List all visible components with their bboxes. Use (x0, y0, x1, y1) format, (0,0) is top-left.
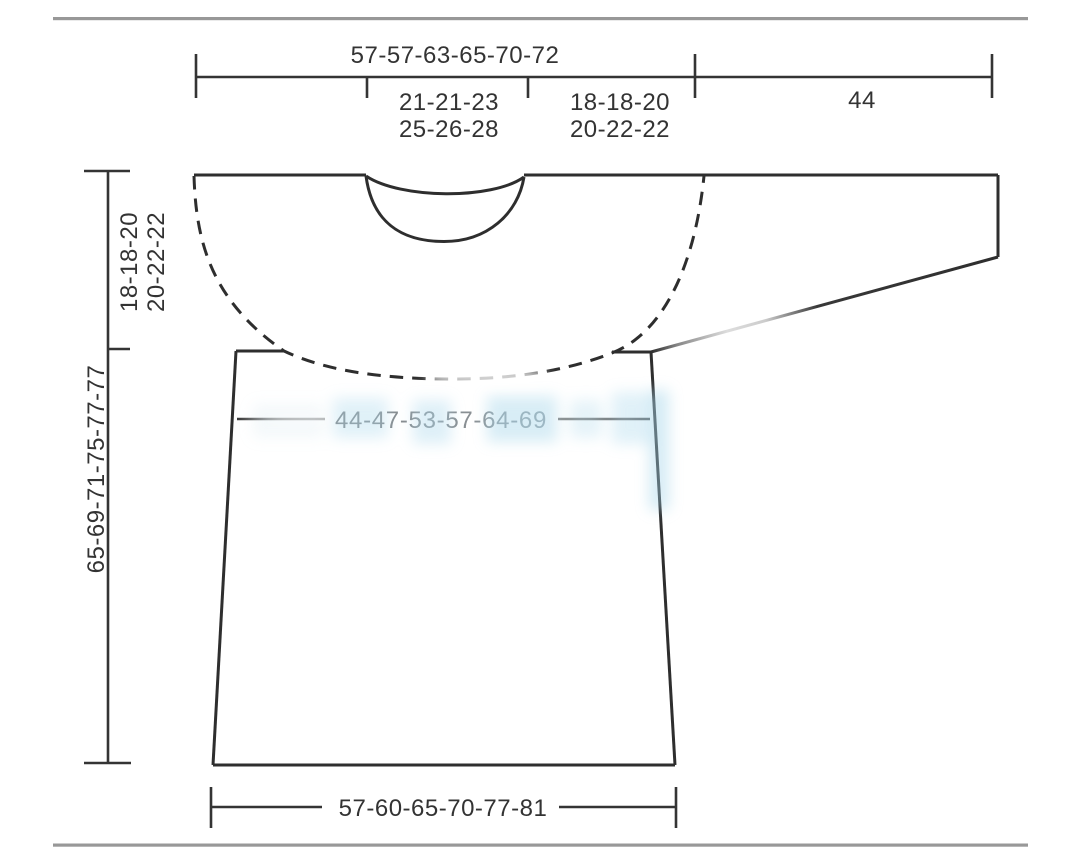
svg-text:20-22-22: 20-22-22 (143, 212, 170, 312)
svg-text:65-69-71-75-77-77: 65-69-71-75-77-77 (83, 365, 110, 574)
svg-text:20-22-22: 20-22-22 (570, 116, 670, 143)
svg-text:21-21-23: 21-21-23 (399, 89, 499, 116)
svg-text:57-60-65-70-77-81: 57-60-65-70-77-81 (339, 795, 548, 822)
svg-text:18-18-20: 18-18-20 (570, 89, 670, 116)
svg-text:18-18-20: 18-18-20 (116, 212, 143, 312)
svg-text:44: 44 (848, 87, 876, 114)
svg-text:57-57-63-65-70-72: 57-57-63-65-70-72 (351, 42, 560, 69)
svg-text:25-26-28: 25-26-28 (399, 116, 499, 143)
